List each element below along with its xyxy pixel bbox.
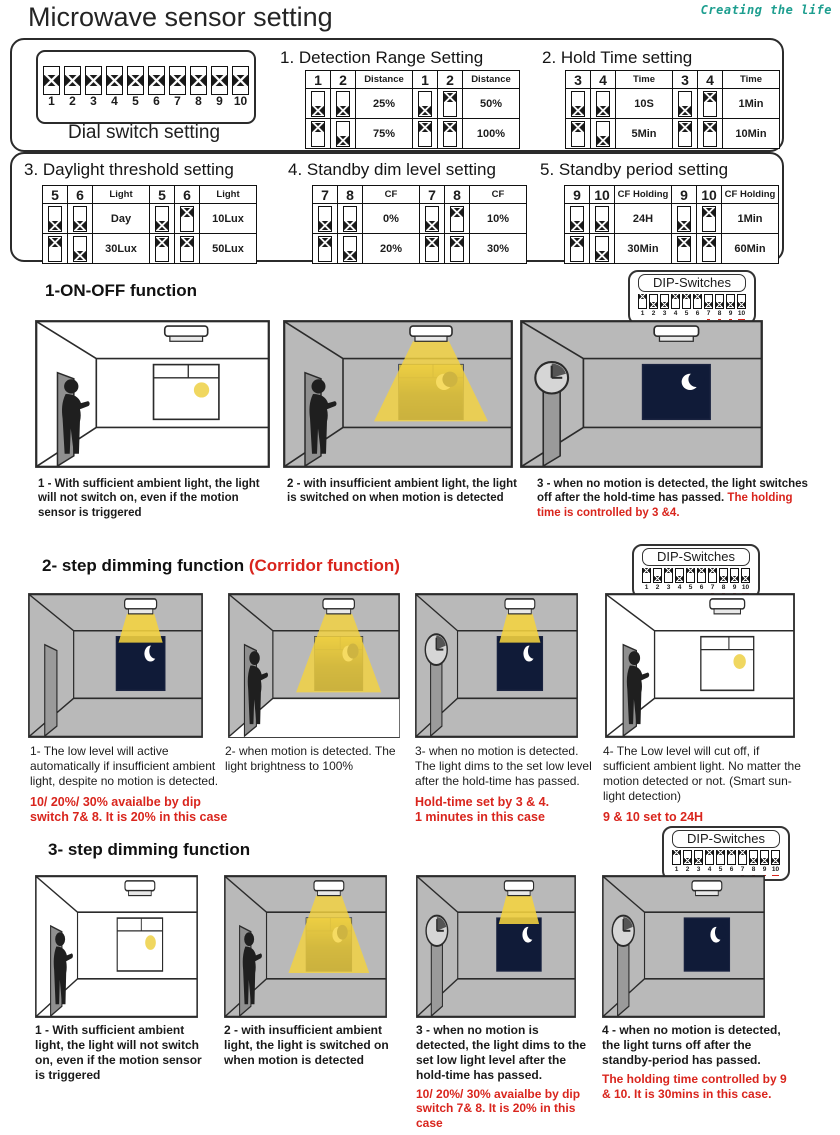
- dip-switch-icon: [716, 850, 725, 865]
- section-heading-3step: 3- step dimming function: [48, 840, 250, 860]
- manual-page: Creating the life Microwave sensor setti…: [0, 0, 840, 1135]
- dip-switch-icon: [570, 236, 584, 262]
- dip-switch-icon: [642, 568, 651, 583]
- caption: 1 - With sufficient ambient light, the l…: [35, 1023, 215, 1083]
- switch-column-header: 10: [697, 186, 722, 204]
- caption-text: 2 - with insufficient ambient light, the…: [287, 478, 517, 504]
- setting-value: 30Lux: [93, 234, 150, 264]
- caption-text: 2 - with insufficient ambient light, the…: [224, 1023, 389, 1067]
- dip-switch-icon: [571, 121, 585, 147]
- dip-switches-label: DIP-Switches: [642, 548, 750, 566]
- dip-switch-icon: [719, 568, 728, 583]
- dip-switch-icon: [232, 66, 249, 95]
- caption: 3- when no motion is detected. The light…: [415, 744, 595, 826]
- switch-column-header: 5: [43, 186, 68, 204]
- dip-switch-number: 2: [686, 865, 690, 875]
- dip-switch-icon: [693, 294, 702, 309]
- setting-table-standby-dim: 78CF78CF0%10%20%30%: [312, 185, 527, 264]
- dip-switch-icon: [106, 66, 123, 95]
- ceiling-lamp: [125, 881, 155, 896]
- dip-switch-icon: [211, 66, 228, 95]
- room-illustration: [415, 593, 578, 738]
- dial-switch: 2: [65, 66, 80, 109]
- section-heading-2step: 2- step dimming function (Corridor funct…: [42, 556, 400, 576]
- dip-switch: 3: [694, 850, 703, 876]
- dip-switch-icon: [638, 294, 647, 309]
- room-illustration: [602, 875, 765, 1018]
- dip-switch-number: 1: [645, 583, 649, 593]
- dip-switch-icon: [596, 121, 610, 147]
- caption-text: 1 - With sufficient ambient light, the l…: [35, 1023, 202, 1082]
- caption-highlight: The holding time controlled by 9 & 10. I…: [602, 1072, 792, 1102]
- dip-switch-number: 2: [656, 583, 660, 593]
- dial-switch-number: 7: [174, 95, 181, 109]
- dip-switch-icon: [418, 91, 432, 117]
- setting-table: 78CF78CF0%10%20%30%: [312, 185, 527, 264]
- switch-column-header: 1: [306, 71, 331, 89]
- dip-switch-icon: [595, 236, 609, 262]
- dip-switch-icon: [596, 91, 610, 117]
- setting-value: 50%: [463, 89, 520, 119]
- setting-value: 50Lux: [200, 234, 257, 264]
- switch-column-header: 9: [565, 186, 590, 204]
- dial-switch: 3: [86, 66, 101, 109]
- dip-switch-number: 8: [718, 309, 722, 320]
- dip-switch: 5: [686, 568, 695, 594]
- ceiling-lamp: [323, 599, 354, 614]
- dip-switch: 4: [671, 294, 680, 320]
- dip-switch-icon: [682, 294, 691, 309]
- dip-switch-icon: [343, 236, 357, 262]
- caption: 1 - With sufficient ambient light, the l…: [38, 477, 270, 520]
- dip-switch-icon: [148, 66, 165, 95]
- caption-text: 3- when no motion is detected. The light…: [415, 744, 592, 788]
- caption-text: 2- when motion is detected. The light br…: [225, 744, 396, 773]
- dip-switch-icon: [760, 850, 769, 865]
- dip-switch-icon: [705, 850, 714, 865]
- caption-highlight: 9 & 10 set to 24H: [603, 810, 803, 826]
- dip-switch-icon: [704, 294, 713, 309]
- value-column-header: Distance: [356, 71, 413, 89]
- dip-switch: 2: [653, 568, 662, 594]
- dip-switch-icon: [180, 236, 194, 262]
- caption: 4 - when no motion is detected, the ligh…: [602, 1023, 792, 1101]
- setting-table-hold-time: 34Time34Time10S1Min5Min10Min: [565, 70, 780, 149]
- dip-switch-icon: [571, 91, 585, 117]
- dial-switch-number: 8: [195, 95, 202, 109]
- switch-column-header: 4: [591, 71, 616, 89]
- dip-switch-icon: [702, 206, 716, 232]
- dip-switch-icon: [48, 206, 62, 232]
- dip-switch-icon: [749, 850, 758, 865]
- dial-switch: 4: [107, 66, 122, 109]
- switch-column-header: 3: [673, 71, 698, 89]
- value-column-header: Time: [723, 71, 780, 89]
- ceiling-lamp: [165, 326, 208, 341]
- clock-icon: [425, 634, 447, 665]
- dip-switch-icon: [311, 121, 325, 147]
- setting-value: 1Min: [723, 89, 780, 119]
- sun-icon: [145, 935, 156, 950]
- setting-value: Day: [93, 204, 150, 234]
- dip-switch: 8: [749, 850, 758, 876]
- dip-switch-icon: [73, 206, 87, 232]
- dip-switch-number: 4: [674, 309, 678, 319]
- table-row: 30Min60Min: [565, 234, 779, 264]
- value-column-header: Distance: [463, 71, 520, 89]
- dip-switch-icon: [73, 236, 87, 262]
- dip-switch-icon: [443, 121, 457, 147]
- setting-value: 10S: [616, 89, 673, 119]
- ceiling-lamp: [654, 326, 698, 341]
- dip-switch-icon: [683, 850, 692, 865]
- switch-column-header: 7: [313, 186, 338, 204]
- switch-column-header: 5: [150, 186, 175, 204]
- dip-switch: 1: [638, 294, 647, 320]
- dip-switch-number: 5: [719, 865, 723, 875]
- dip-switch-number: 7: [707, 309, 711, 320]
- setting-value: 10%: [470, 204, 527, 234]
- section-heading-text: 2- step dimming function: [42, 556, 244, 575]
- dip-switch-number: 4: [708, 865, 712, 875]
- dip-switch-icon: [450, 206, 464, 232]
- value-column-header: Light: [200, 186, 257, 204]
- ceiling-lamp: [692, 881, 722, 896]
- value-column-header: CF: [363, 186, 420, 204]
- dip-switch-icon: [595, 206, 609, 232]
- dip-switch: 6: [693, 294, 702, 320]
- dip-switch: 9: [730, 568, 739, 594]
- dip-switches-badge: DIP-Switches12345678910: [628, 270, 756, 325]
- room-illustration: [605, 593, 795, 738]
- caption-text: 3 - when no motion is detected, the ligh…: [416, 1023, 586, 1082]
- switch-column-header: 6: [175, 186, 200, 204]
- switch-column-header: 1: [413, 71, 438, 89]
- dip-switch-icon: [727, 850, 736, 865]
- table-row: 24H1Min: [565, 204, 779, 234]
- dip-switch-icon: [425, 206, 439, 232]
- dip-switch-icon: [771, 850, 780, 865]
- setting-value: 30%: [470, 234, 527, 264]
- ceiling-lamp: [125, 599, 157, 614]
- dip-switch: 9: [760, 850, 769, 876]
- dip-switch: 7: [704, 294, 713, 320]
- dial-switch: 6: [149, 66, 164, 109]
- dip-switch-icon: [343, 206, 357, 232]
- caption-text: 4- The Low level will cut off, if suffic…: [603, 744, 801, 803]
- switch-column-header: 7: [420, 186, 445, 204]
- dip-switch: 1: [672, 850, 681, 876]
- setting-value: 75%: [356, 119, 413, 149]
- switch-column-header: 6: [68, 186, 93, 204]
- dip-switch-number: 9: [729, 309, 733, 320]
- dip-switch-icon: [425, 236, 439, 262]
- room-illustration: [35, 875, 198, 1018]
- door: [45, 645, 57, 736]
- dip-switch-icon: [694, 850, 703, 865]
- night-window: [684, 918, 729, 971]
- switch-column-header: 9: [672, 186, 697, 204]
- dial-switch-number: 1: [48, 95, 55, 109]
- section-heading-text: 1-ON-OFF function: [45, 281, 197, 300]
- setting-table: 12Distance12Distance25%50%75%100%: [305, 70, 520, 149]
- dip-switch-icon: [672, 850, 681, 865]
- dip-switch: 10: [771, 850, 780, 876]
- setting-table-standby-period: 910CF Holding910CF Holding24H1Min30Min60…: [564, 185, 779, 264]
- dip-switch-icon: [664, 568, 673, 583]
- dial-switch: 10: [233, 66, 248, 109]
- room-illustration: [416, 875, 576, 1018]
- dip-switch-icon: [190, 66, 207, 95]
- dip-switch-number: 4: [678, 583, 682, 593]
- dial-switch-number: 6: [153, 95, 160, 109]
- clock-icon: [426, 916, 448, 946]
- dip-switch-icon: [336, 91, 350, 117]
- ceiling-lamp: [410, 326, 452, 341]
- dip-switch-number: 3: [667, 583, 671, 593]
- dip-switch-icon: [418, 121, 432, 147]
- dip-switch-icon: [127, 66, 144, 95]
- dip-switch: 8: [719, 568, 728, 594]
- caption-highlight: Hold-time set by 3 & 4. 1 minutes in thi…: [415, 795, 595, 826]
- dip-switches-label: DIP-Switches: [672, 830, 780, 848]
- table-row: 75%100%: [306, 119, 520, 149]
- dip-switch-number: 1: [675, 865, 679, 875]
- setting-title-detection-range: 1. Detection Range Setting: [280, 48, 483, 68]
- value-column-header: CF Holding: [722, 186, 779, 204]
- dip-switch-number: 3: [663, 309, 667, 319]
- dip-switch-icon: [318, 236, 332, 262]
- dip-switch-icon: [85, 66, 102, 95]
- dip-switch: 2: [683, 850, 692, 876]
- ceiling-lamp: [505, 599, 535, 614]
- setting-value: 0%: [363, 204, 420, 234]
- dial-switch: 1: [44, 66, 59, 109]
- dip-switch-icon: [726, 294, 735, 309]
- setting-value: 10Min: [723, 119, 780, 149]
- dip-switch-icon: [703, 121, 717, 147]
- setting-value: 1Min: [722, 204, 779, 234]
- setting-value: 100%: [463, 119, 520, 149]
- switch-column-header: 2: [331, 71, 356, 89]
- setting-table-daylight: 56Light56LightDay10Lux30Lux50Lux: [42, 185, 257, 264]
- dip-switch-icon: [675, 568, 684, 583]
- night-window: [116, 637, 165, 691]
- dial-switch-diagram: 12345678910: [36, 50, 256, 124]
- dip-switch-number: 1: [641, 309, 645, 319]
- setting-table: 34Time34Time10S1Min5Min10Min: [565, 70, 780, 149]
- switch-column-header: 8: [445, 186, 470, 204]
- room-illustration: [28, 593, 203, 738]
- dip-switch-icon: [180, 206, 194, 232]
- dip-switch-icon: [169, 66, 186, 95]
- setting-value: 10Lux: [200, 204, 257, 234]
- setting-table-detection-range: 12Distance12Distance25%50%75%100%: [305, 70, 520, 149]
- setting-value: 20%: [363, 234, 420, 264]
- dip-switch-icon: [336, 121, 350, 147]
- dip-switch-icon: [677, 206, 691, 232]
- section-heading-text: 3- step dimming function: [48, 840, 250, 859]
- night-window: [497, 918, 542, 971]
- caption: 3 - when no motion is detected, the ligh…: [416, 1023, 594, 1131]
- day-window: [701, 637, 754, 691]
- dial-switch-number: 9: [216, 95, 223, 109]
- setting-title-standby-period: 5. Standby period setting: [540, 160, 728, 180]
- dip-switch-icon: [570, 206, 584, 232]
- value-column-header: Time: [616, 71, 673, 89]
- night-window: [497, 637, 542, 691]
- dip-switch-icon: [155, 236, 169, 262]
- dip-switch-icon: [649, 294, 658, 309]
- dip-switch-icon: [443, 91, 457, 117]
- dip-switch: 7: [708, 568, 717, 594]
- dip-switch: 3: [664, 568, 673, 594]
- switch-column-header: 2: [438, 71, 463, 89]
- ceiling-lamp: [504, 881, 533, 896]
- dip-switch-icon: [678, 121, 692, 147]
- settings-box-top: 12345678910 Dial switch setting 1. Detec…: [10, 38, 784, 152]
- table-row: 5Min10Min: [566, 119, 780, 149]
- table-row: Day10Lux: [43, 204, 257, 234]
- ceiling-lamp: [710, 599, 745, 614]
- day-window: [154, 365, 219, 420]
- room-illustration: [35, 320, 270, 468]
- dip-switch-icon: [677, 236, 691, 262]
- dip-switch-icon: [48, 236, 62, 262]
- setting-table: 56Light56LightDay10Lux30Lux50Lux: [42, 185, 257, 264]
- page-title: Microwave sensor setting: [28, 2, 333, 33]
- caption: 1- The low level will active automatical…: [30, 744, 230, 826]
- switch-column-header: 3: [566, 71, 591, 89]
- dip-switch: 6: [727, 850, 736, 876]
- dial-switch-number: 2: [69, 95, 76, 109]
- dip-switch-icon: [678, 91, 692, 117]
- dial-switch-number: 10: [234, 95, 247, 109]
- table-row: 0%10%: [313, 204, 527, 234]
- dip-switch: 1: [642, 568, 651, 594]
- dip-switch-icon: [318, 206, 332, 232]
- dip-switch-icon: [715, 294, 724, 309]
- dip-switch-number: 3: [697, 865, 701, 875]
- table-row: 10S1Min: [566, 89, 780, 119]
- value-column-header: CF Holding: [615, 186, 672, 204]
- night-window: [643, 365, 711, 420]
- setting-value: 25%: [356, 89, 413, 119]
- caption-text: 4 - when no motion is detected, the ligh…: [602, 1023, 781, 1067]
- dip-switch-number: 2: [652, 309, 656, 319]
- caption-highlight: 10/ 20%/ 30% avaialbe by dip switch 7& 8…: [416, 1087, 594, 1132]
- section-subheading-text: (Corridor function): [249, 556, 400, 575]
- dip-switch-icon: [708, 568, 717, 583]
- dip-switch-icon: [730, 568, 739, 583]
- caption-text: 1- The low level will active automatical…: [30, 744, 218, 788]
- dip-switch: 10: [741, 568, 750, 594]
- dip-switch: 6: [697, 568, 706, 594]
- dial-switch: 5: [128, 66, 143, 109]
- dip-switch-icon: [741, 568, 750, 583]
- brand-tagline: Creating the life: [701, 3, 832, 17]
- table-row: 30Lux50Lux: [43, 234, 257, 264]
- dial-switch-number: 3: [90, 95, 97, 109]
- setting-value: 5Min: [616, 119, 673, 149]
- dip-switch-icon: [660, 294, 669, 309]
- dip-switch: 4: [705, 850, 714, 876]
- dial-switch: 8: [191, 66, 206, 109]
- setting-title-daylight: 3. Daylight threshold setting: [24, 160, 234, 180]
- switch-column-header: 8: [338, 186, 363, 204]
- setting-value: 60Min: [722, 234, 779, 264]
- dip-switch-icon: [43, 66, 60, 95]
- clock-icon: [612, 916, 634, 946]
- dip-switch-icon: [702, 236, 716, 262]
- dip-switch-icon: [671, 294, 680, 309]
- dip-switch: 3: [660, 294, 669, 320]
- setting-title-hold-time: 2. Hold Time setting: [542, 48, 692, 68]
- dip-switch-number: 10: [738, 309, 745, 320]
- table-row: 25%50%: [306, 89, 520, 119]
- dial-switch: 7: [170, 66, 185, 109]
- setting-value: 30Min: [615, 234, 672, 264]
- dial-switch-number: 5: [132, 95, 139, 109]
- value-column-header: Light: [93, 186, 150, 204]
- dip-switch-number: 6: [730, 865, 734, 875]
- sun-icon: [733, 654, 745, 669]
- value-column-header: CF: [470, 186, 527, 204]
- dial-switch: 9: [212, 66, 227, 109]
- dip-switch: 10: [737, 294, 746, 320]
- room-illustration: [520, 320, 763, 468]
- dip-switch: 5: [716, 850, 725, 876]
- dial-switch-label: Dial switch setting: [36, 122, 252, 144]
- caption: 2 - with insufficient ambient light, the…: [224, 1023, 399, 1068]
- caption: 2 - with insufficient ambient light, the…: [287, 477, 522, 506]
- caption: 4- The Low level will cut off, if suffic…: [603, 744, 803, 825]
- room-illustration: [283, 320, 513, 468]
- dip-switch-icon: [703, 91, 717, 117]
- setting-title-standby-dim: 4. Standby dim level setting: [288, 160, 496, 180]
- dip-switches-label: DIP-Switches: [638, 274, 746, 292]
- setting-value: 24H: [615, 204, 672, 234]
- settings-box-bottom: 3. Daylight threshold setting 56Light56L…: [10, 152, 784, 262]
- dip-switch-number: 10: [772, 865, 779, 876]
- dip-switch-icon: [311, 91, 325, 117]
- caption: 2- when motion is detected. The light br…: [225, 744, 410, 774]
- dip-switch-icon: [737, 294, 746, 309]
- dip-switches-badge: DIP-Switches12345678910: [632, 544, 760, 599]
- dip-switch: 9: [726, 294, 735, 320]
- switch-column-header: 10: [590, 186, 615, 204]
- switch-column-header: 4: [698, 71, 723, 89]
- dip-switches-badge: DIP-Switches12345678910: [662, 826, 790, 881]
- section-heading-on-off: 1-ON-OFF function: [45, 281, 197, 301]
- clock-icon: [535, 362, 568, 393]
- caption-highlight: 10/ 20%/ 30% avaialbe by dip switch 7& 8…: [30, 795, 230, 826]
- dial-switch-number: 4: [111, 95, 118, 109]
- dip-switch-icon: [738, 850, 747, 865]
- dip-switch-icon: [697, 568, 706, 583]
- dip-switch: 2: [649, 294, 658, 320]
- dip-switch-number: 5: [689, 583, 693, 593]
- dip-switch-icon: [155, 206, 169, 232]
- room-illustration: [228, 593, 400, 738]
- dip-switch-icon: [64, 66, 81, 95]
- sun-icon: [194, 382, 209, 397]
- table-row: 20%30%: [313, 234, 527, 264]
- ceiling-lamp: [314, 881, 344, 896]
- dip-switch-number: 5: [685, 309, 689, 319]
- room-illustration: [224, 875, 387, 1018]
- dip-switch: 7: [738, 850, 747, 876]
